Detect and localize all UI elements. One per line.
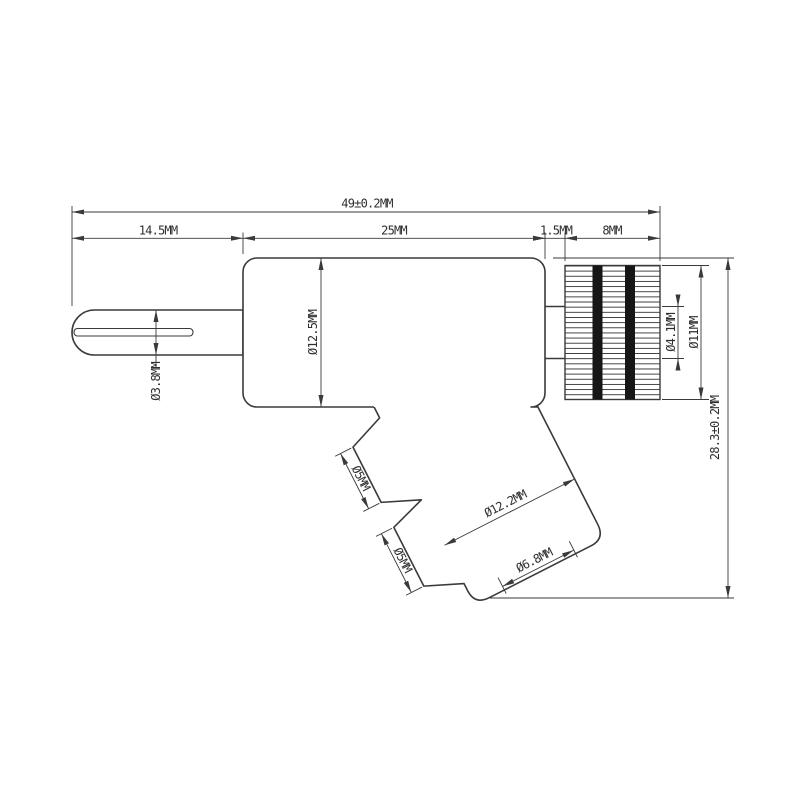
dim-shaft-diameter-label: Ø4.1MM: [664, 313, 678, 352]
dim-heatsink-length-label: 8MM: [602, 224, 622, 238]
drawing-page: 49±0.2MM 14.5MM 25MM 1.5MM 8MM Ø3.8MM Ø1…: [0, 0, 800, 800]
collar-shaft: [545, 307, 565, 359]
dim-body-diameter-label: Ø12.5MM: [306, 309, 320, 355]
dim-collar-gap-label: 1.5MM: [540, 224, 573, 238]
heatsink-bar-2: [625, 266, 635, 400]
dim-overall-height-label: 28.3±0.2MM: [708, 395, 722, 460]
heatsink-fins: [565, 266, 660, 400]
dim-plug-diameter-label: Ø3.8MM: [149, 362, 163, 401]
plug-slot: [74, 329, 193, 337]
dim-plug-length-label: 14.5MM: [139, 224, 178, 238]
heatsink-group: [565, 266, 660, 400]
dim-body-length-label: 25MM: [381, 224, 407, 238]
technical-drawing: 49±0.2MM 14.5MM 25MM 1.5MM 8MM Ø3.8MM Ø1…: [0, 0, 800, 800]
body-fill: [243, 258, 545, 407]
dim-overall-length-label: 49±0.2MM: [341, 197, 393, 211]
heatsink-bar-1: [593, 266, 603, 400]
dim-heatsink-diameter-label: Ø11MM: [687, 316, 701, 349]
